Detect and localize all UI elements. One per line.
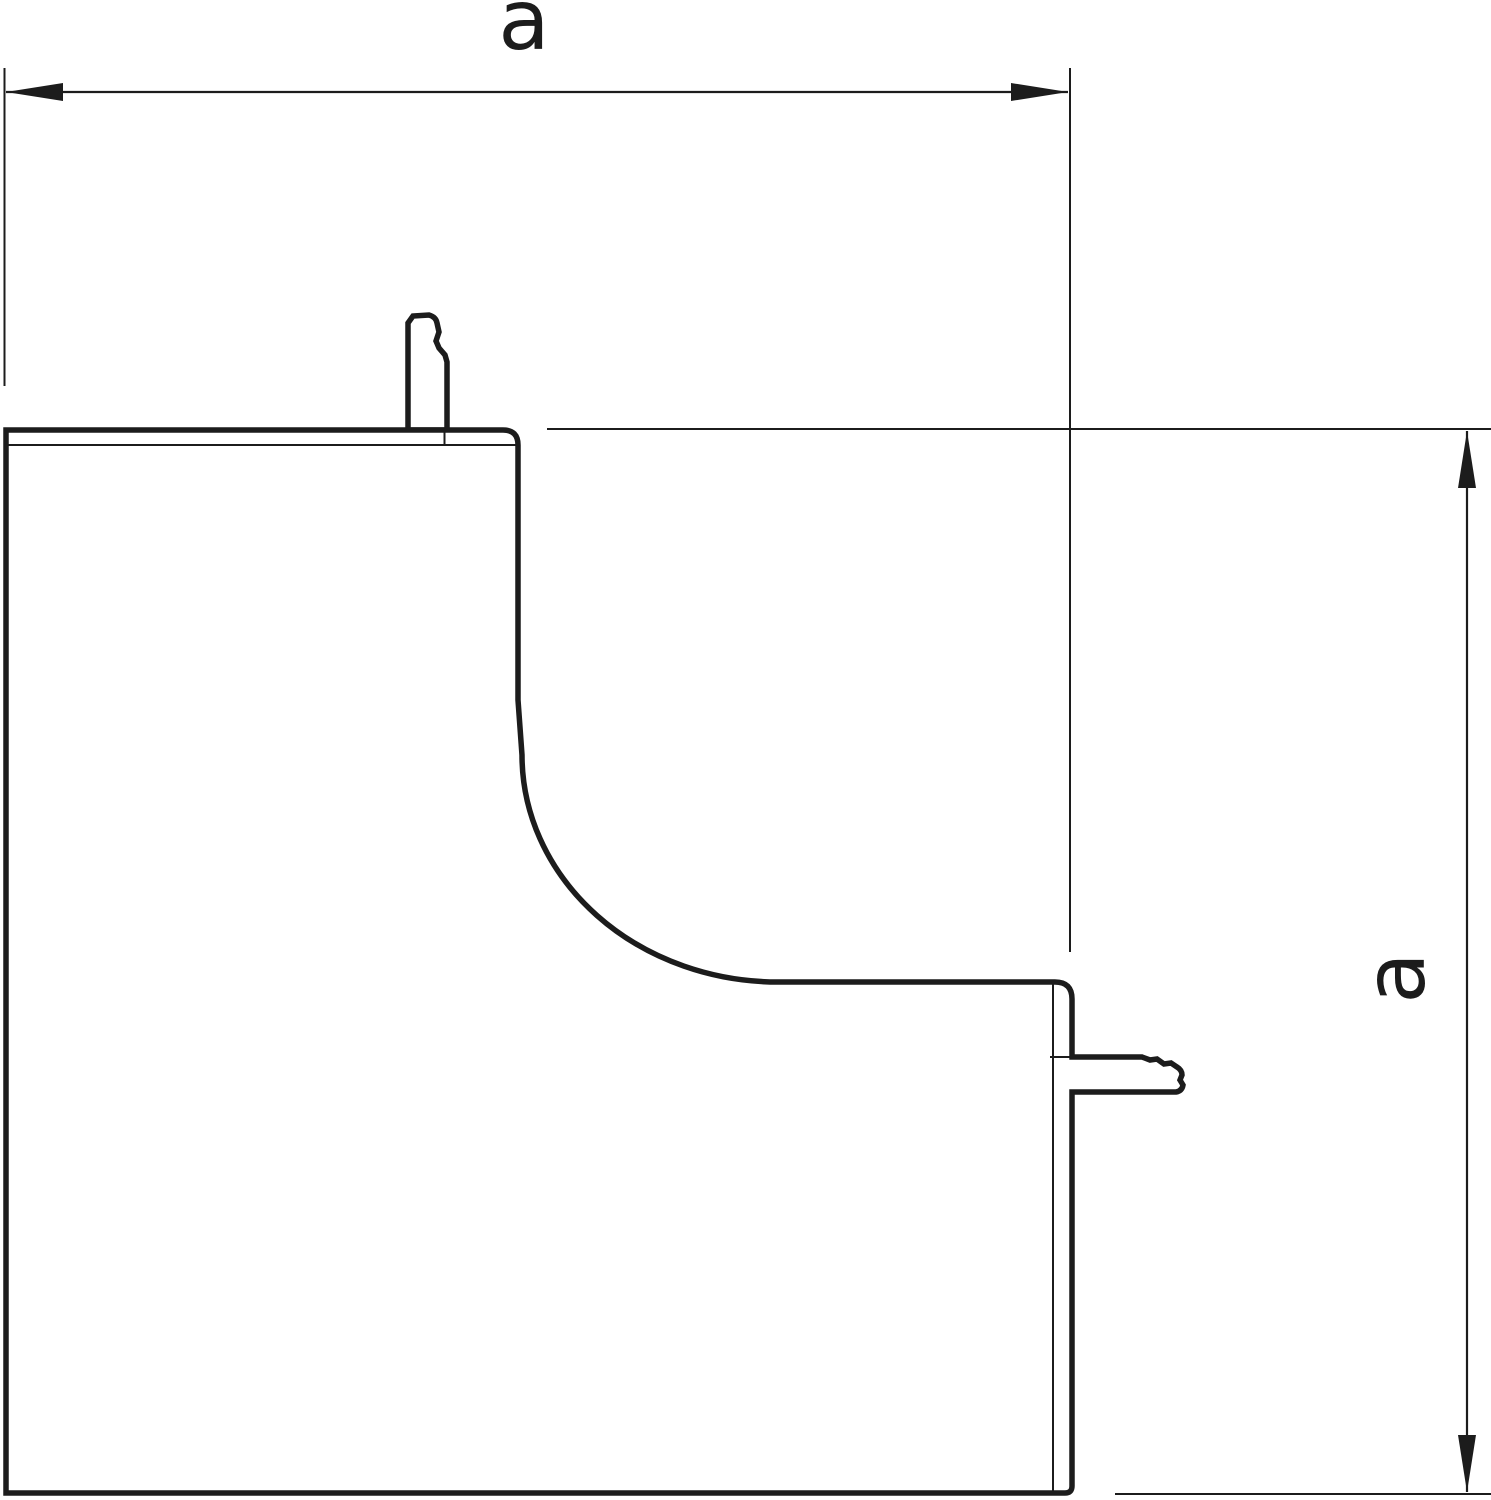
- drawing-canvas: a a: [0, 0, 1491, 1500]
- part-outline: [6, 430, 1183, 1493]
- technical-drawing: a a: [0, 0, 1491, 1500]
- height-arrow-top-icon: [1458, 431, 1476, 488]
- width-arrow-left-icon: [6, 83, 63, 101]
- top-retention-clip: [408, 315, 447, 430]
- width-arrow-right-icon: [1011, 83, 1068, 101]
- height-arrow-bottom-icon: [1458, 1435, 1476, 1492]
- height-dimension-label: a: [1346, 952, 1444, 1003]
- width-dimension-label: a: [498, 0, 549, 69]
